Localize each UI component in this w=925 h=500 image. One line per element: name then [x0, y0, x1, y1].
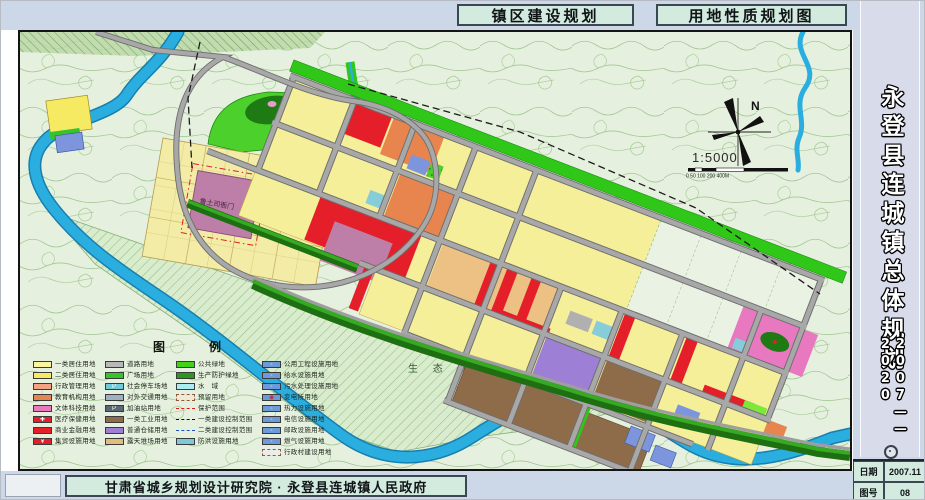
legend-item-label: 公共绿地	[198, 359, 225, 368]
legend-item-label: 加油站用地	[127, 403, 161, 412]
bottom-band: 甘肃省城乡规划设计研究院 · 永登县连城镇人民政府	[1, 471, 853, 500]
legend-swatch	[105, 438, 124, 445]
legend-col-1: 一类居住用地二类居住用地行政管理用地教育机构用地文体科技用地✚医疗保健用地商业金…	[33, 360, 98, 456]
date-value: 2007.11	[884, 461, 925, 482]
legend-item-label: 对外交通用地	[127, 392, 168, 401]
legend-item: 一类居住用地	[33, 360, 98, 368]
legend-swatch	[33, 394, 52, 401]
legend-columns: 一类居住用地二类居住用地行政管理用地教育机构用地文体科技用地✚医疗保健用地商业金…	[33, 360, 341, 456]
legend-title: 图 例	[33, 338, 341, 355]
credit-text: 甘肃省城乡规划设计研究院 · 永登县连城镇人民政府	[105, 477, 428, 496]
legend-swatch	[105, 394, 124, 401]
legend-item: 露天堆场用地	[105, 437, 170, 445]
sidebar: 永登县连城镇总体规划 2007——2020 日期 2007.11 图号 08	[853, 1, 925, 500]
legend-item: 水 域	[176, 382, 255, 390]
plan-sheet: 镇区建设规划 用地性质规划图	[0, 0, 925, 500]
legend-item: 公共绿地	[176, 360, 255, 368]
legend-swatch: P	[105, 383, 124, 390]
legend-item-label: 行政管理用地	[55, 381, 96, 390]
title-box-right: 用地性质规划图	[656, 4, 847, 26]
legend-swatch	[105, 361, 124, 368]
legend-item: 一类工业用地	[105, 415, 170, 423]
top-band: 镇区建设规划 用地性质规划图	[1, 1, 853, 30]
legend-swatch	[176, 405, 195, 412]
legend-item: ◦热力设施用地	[262, 404, 341, 412]
legend-item: ◦电信设施用地	[262, 415, 341, 423]
legend-item-label: 露天堆场用地	[127, 436, 168, 445]
legend-swatch	[176, 372, 195, 379]
legend-swatch: P	[105, 405, 124, 412]
legend-item: ✚医疗保健用地	[33, 415, 98, 423]
legend-item: 对外交通用地	[105, 393, 170, 401]
legend-item: ¥集贸设施用地	[33, 437, 98, 445]
legend-item-label: 文体科技用地	[55, 403, 96, 412]
legend-swatch: ◦	[262, 361, 281, 368]
legend-item: 广场用地	[105, 371, 170, 379]
legend-col-4: ◦公用工程设施用地◦给水设施用地◦污水处理设施用地◉变电所用地◦热力设施用地◦电…	[262, 360, 341, 456]
scale-ticks: 0 50 100 200 400M	[686, 174, 729, 180]
legend-col-3: 公共绿地生产防护绿地水 域预留用地保护范围一类建设控制范围二类建设控制范围防洪设…	[176, 360, 255, 456]
legend-swatch: ◦	[262, 383, 281, 390]
legend-swatch: ◦	[262, 416, 281, 423]
legend-swatch	[105, 427, 124, 434]
legend-item: ◦污水处理设施用地	[262, 382, 341, 390]
legend-item: ◉变电所用地	[262, 393, 341, 401]
legend-item-label: 保护范围	[198, 403, 225, 412]
legend-item: ◦公用工程设施用地	[262, 360, 341, 368]
legend-item: 教育机构用地	[33, 393, 98, 401]
legend-swatch	[262, 449, 281, 456]
legend-swatch: ◦	[262, 372, 281, 379]
legend: 图 例 一类居住用地二类居住用地行政管理用地教育机构用地文体科技用地✚医疗保健用…	[33, 338, 341, 456]
legend-item: 生产防护绿地	[176, 371, 255, 379]
legend-item-label: 水 域	[198, 381, 218, 390]
credit-box: 甘肃省城乡规划设计研究院 · 永登县连城镇人民政府	[65, 475, 467, 497]
legend-item-label: 变电所用地	[284, 392, 318, 401]
legend-item: 道路用地	[105, 360, 170, 368]
legend-swatch	[33, 372, 52, 379]
legend-item: 行政村建设用地	[262, 448, 341, 456]
sheet-number-value: 08	[884, 482, 925, 500]
legend-item-label: 集贸设施用地	[55, 436, 96, 445]
legend-item: 文体科技用地	[33, 404, 98, 412]
legend-item: ◦燃气设施用地	[262, 437, 341, 445]
legend-swatch: ◦	[262, 438, 281, 445]
legend-swatch	[33, 361, 52, 368]
legend-col-2: 道路用地广场用地P社会停车场地对外交通用地P加油站用地一类工业用地普通仓储用地露…	[105, 360, 170, 456]
legend-item-label: 二类建设控制范围	[198, 425, 252, 434]
legend-item: 二类居住用地	[33, 371, 98, 379]
legend-item-label: 普通仓储用地	[127, 425, 168, 434]
scale-text: 1:5000	[692, 150, 738, 165]
legend-item: 防洪设施用地	[176, 437, 255, 445]
sidebar-panel: 永登县连城镇总体规划 2007——2020	[860, 1, 920, 457]
legend-item: 预留用地	[176, 393, 255, 401]
legend-item: 一类建设控制范围	[176, 415, 255, 423]
legend-item: 二类建设控制范围	[176, 426, 255, 434]
legend-item-label: 商业金融用地	[55, 425, 96, 434]
legend-item-label: 教育机构用地	[55, 392, 96, 401]
legend-item-label: 社会停车场地	[127, 381, 168, 390]
legend-item-label: 行政村建设用地	[284, 447, 332, 456]
legend-item-label: 污水处理设施用地	[284, 381, 338, 390]
corner-box	[5, 474, 61, 497]
page-title-right: 用地性质规划图	[688, 5, 814, 26]
legend-item-label: 二类居住用地	[55, 370, 96, 379]
page-title-left: 镇区建设规划	[491, 5, 599, 26]
legend-item-label: 医疗保健用地	[55, 414, 96, 423]
legend-item-label: 预留用地	[198, 392, 225, 401]
legend-swatch: ◉	[262, 394, 281, 401]
legend-swatch	[33, 427, 52, 434]
plan-title-vertical: 永登县连城镇总体规划	[873, 85, 907, 375]
date-label: 日期	[853, 461, 884, 482]
legend-item-label: 一类工业用地	[127, 414, 168, 423]
legend-item-label: 道路用地	[127, 359, 154, 368]
legend-item: P社会停车场地	[105, 382, 170, 390]
legend-swatch	[176, 394, 195, 401]
legend-item: 商业金融用地	[33, 426, 98, 434]
north-label: N	[751, 99, 760, 113]
legend-swatch: ◦	[262, 427, 281, 434]
legend-swatch	[33, 383, 52, 390]
legend-item-label: 邮政设施用地	[284, 425, 325, 434]
legend-swatch	[176, 427, 195, 434]
seal-icon	[884, 445, 898, 459]
title-box-left: 镇区建设规划	[457, 4, 634, 26]
sheet-number-label: 图号	[853, 482, 884, 500]
legend-item-label: 一类建设控制范围	[198, 414, 252, 423]
legend-item: ◦邮政设施用地	[262, 426, 341, 434]
legend-swatch	[176, 383, 195, 390]
legend-swatch	[176, 361, 195, 368]
legend-item-label: 电信设施用地	[284, 414, 325, 423]
legend-swatch	[105, 416, 124, 423]
legend-item-label: 公用工程设施用地	[284, 359, 338, 368]
park-pavilion	[268, 101, 277, 107]
legend-item: P加油站用地	[105, 404, 170, 412]
legend-item-label: 防洪设施用地	[198, 436, 239, 445]
legend-swatch: ✚	[33, 416, 52, 423]
plan-years-vertical: 2007——2020	[878, 337, 908, 457]
legend-item-label: 燃气设施用地	[284, 436, 325, 445]
legend-item: 保护范围	[176, 404, 255, 412]
legend-item: ◦给水设施用地	[262, 371, 341, 379]
legend-swatch	[33, 405, 52, 412]
legend-item-label: 一类居住用地	[55, 359, 96, 368]
legend-swatch	[176, 438, 195, 445]
legend-item-label: 热力设施用地	[284, 403, 325, 412]
title-block-table: 日期 2007.11 图号 08	[853, 459, 925, 500]
legend-item-label: 生产防护绿地	[198, 370, 239, 379]
legend-swatch	[176, 416, 195, 423]
legend-swatch	[105, 372, 124, 379]
legend-swatch: ◦	[262, 405, 281, 412]
legend-item: 普通仓储用地	[105, 426, 170, 434]
legend-item: 行政管理用地	[33, 382, 98, 390]
legend-item-label: 广场用地	[127, 370, 154, 379]
map-canvas[interactable]: 生 态 绿 地	[18, 30, 852, 471]
legend-item-label: 给水设施用地	[284, 370, 325, 379]
legend-swatch: ¥	[33, 438, 52, 445]
